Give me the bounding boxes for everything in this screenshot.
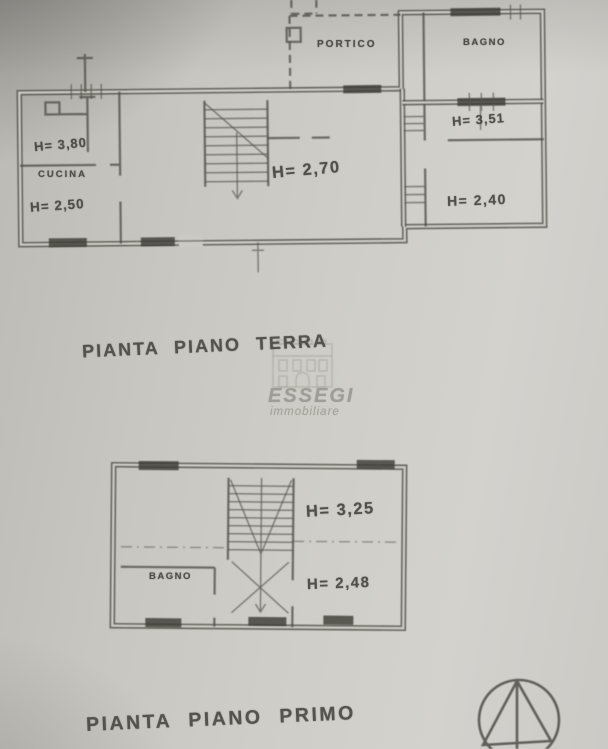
ground-staircase: [204, 100, 268, 199]
plan-linework: [0, 0, 608, 749]
label-stair-hall-height: H= 3,25: [306, 499, 376, 522]
window: [450, 8, 500, 17]
window: [323, 616, 353, 625]
watermark-brand: ESSEGI: [268, 385, 354, 408]
window: [139, 461, 179, 470]
dimension-line: [252, 242, 264, 272]
window: [357, 460, 395, 469]
window: [248, 617, 286, 626]
stair-direction-arrow: [232, 132, 243, 198]
window: [141, 237, 175, 246]
first-floor-drawing: [112, 458, 404, 630]
ground-shared-wall-cavity: [402, 89, 403, 227]
watermark-subtitle: immobiliare: [270, 406, 340, 418]
label-bedroom-height-first: H= 2,48: [307, 574, 371, 593]
label-kitchen: CUCINA: [38, 169, 87, 180]
label-bedroom-height-ground: H= 2,40: [447, 191, 507, 209]
floor-plan-photo: H= 3,80 CUCINA H= 2,50 H= 2,70 PORTICO B…: [0, 0, 608, 749]
compass-north-arrow-icon: [479, 680, 559, 749]
label-portico: PORTICO: [317, 39, 377, 50]
window-ticks: [70, 4, 521, 99]
window-ticks: [404, 116, 425, 202]
height-change-line: [121, 540, 398, 549]
label-bathroom-first: BAGNO: [149, 571, 192, 582]
window: [49, 238, 87, 247]
window: [145, 618, 181, 627]
label-bathroom-ground: BAGNO: [463, 37, 506, 48]
window: [343, 85, 381, 93]
first-staircase: [227, 478, 293, 613]
